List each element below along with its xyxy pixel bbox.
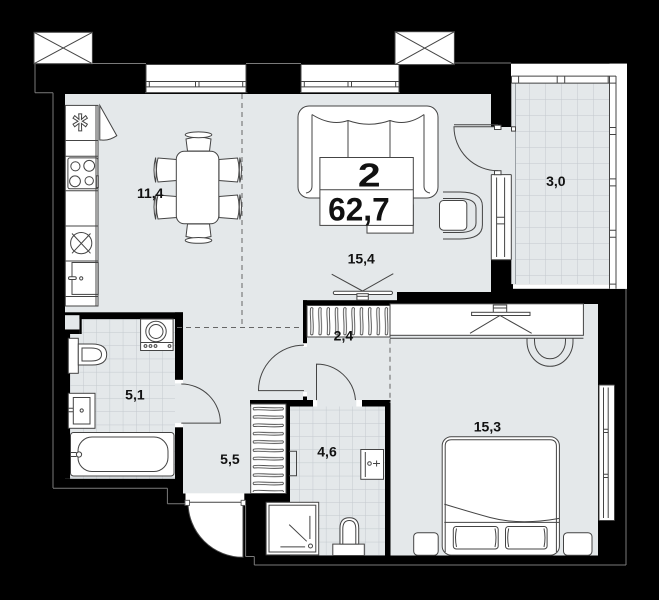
svg-text:62,7: 62,7 <box>328 192 390 228</box>
svg-text:2,4: 2,4 <box>334 328 354 344</box>
svg-text:15,3: 15,3 <box>474 419 501 435</box>
svg-text:15,4: 15,4 <box>348 251 375 267</box>
svg-text:11,4: 11,4 <box>137 185 164 201</box>
svg-text:3,0: 3,0 <box>546 173 566 189</box>
svg-text:5,1: 5,1 <box>125 387 145 403</box>
svg-text:4,6: 4,6 <box>317 444 337 460</box>
svg-text:2: 2 <box>358 156 381 194</box>
svg-text:5,5: 5,5 <box>220 451 240 467</box>
